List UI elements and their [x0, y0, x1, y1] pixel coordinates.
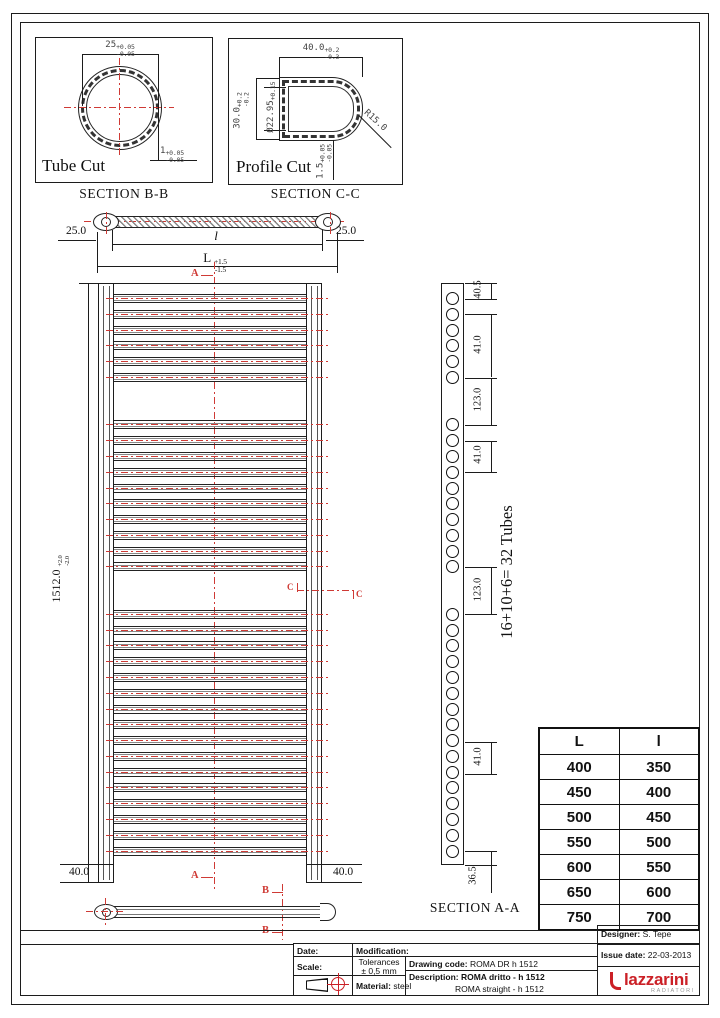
designer-field: Designer: S. Tepe	[601, 929, 671, 939]
line: +1.5-1.5	[214, 258, 227, 273]
line: -0.2	[243, 92, 250, 107]
scale-label: Scale:	[297, 962, 322, 972]
section-b-marker-top: B	[262, 885, 269, 896]
line	[158, 54, 159, 161]
inner-length-dim: l	[209, 228, 223, 244]
line	[114, 659, 306, 664]
front-tube	[114, 547, 306, 556]
line: 1.5	[316, 163, 326, 179]
section-c-line	[297, 590, 354, 591]
brand-subtitle: RADIATORI	[651, 988, 695, 994]
line: -2.0	[65, 556, 72, 567]
brand-name: lazzarini	[624, 970, 688, 990]
dim-line	[491, 283, 492, 299]
line	[114, 486, 306, 491]
line	[114, 675, 306, 680]
front-tube	[114, 294, 306, 303]
side-tube-circle	[446, 450, 459, 463]
size-header-l: l	[619, 728, 699, 755]
side-tube-circle	[446, 813, 459, 826]
front-tube	[114, 484, 306, 493]
size-cell: 650	[539, 880, 619, 905]
line	[256, 139, 280, 140]
front-tube	[114, 815, 306, 824]
front-tube	[114, 799, 306, 808]
side-dimension-label: 123.0	[473, 567, 484, 611]
tube-count-label: 16+10+6= 32 Tubes	[497, 487, 517, 657]
line	[20, 944, 293, 945]
line	[58, 240, 96, 241]
bottom-left-dim: 40.0	[62, 866, 96, 878]
red-centerline	[272, 892, 283, 893]
line	[306, 864, 362, 865]
section-c-marker-right: C	[356, 589, 363, 599]
line	[279, 57, 280, 77]
line	[114, 423, 306, 428]
front-tube	[114, 689, 306, 698]
side-tube-circle	[446, 766, 459, 779]
line	[114, 722, 306, 727]
line	[326, 240, 364, 241]
line	[362, 57, 363, 77]
line: +2.0-2.0	[58, 556, 71, 567]
side-tube-circle	[446, 545, 459, 558]
line: ROMA dritto - h 1512	[461, 972, 545, 982]
side-tube-circle	[446, 687, 459, 700]
front-tube	[114, 831, 306, 840]
dim-extension-line	[465, 314, 497, 315]
profile-bore-dim: Ø22.95+0.15	[266, 77, 277, 137]
size-cell: 600	[539, 855, 619, 880]
size-cell: 450	[539, 780, 619, 805]
line	[114, 312, 306, 317]
profile-inner	[288, 86, 354, 132]
tube-centerline-v	[119, 58, 120, 158]
front-tube	[114, 341, 306, 350]
side-tube-circle	[446, 324, 459, 337]
description-field: Description: ROMA dritto - h 1512	[409, 972, 545, 982]
front-tube	[114, 468, 306, 477]
side-tube-circle	[446, 624, 459, 637]
red-centerline	[105, 898, 106, 926]
section-cc-label: SECTION C-C	[228, 186, 403, 202]
line: 30.0	[233, 107, 243, 129]
front-tube	[114, 705, 306, 714]
line	[60, 882, 98, 883]
profile-wall-dim: 1.5+0.05-0.05	[316, 132, 333, 192]
side-tube-circle	[446, 292, 459, 305]
side-tube-circle	[446, 529, 459, 542]
line	[311, 286, 312, 880]
top-view-tube	[113, 216, 320, 228]
dim-line	[491, 441, 492, 473]
side-tube-circle	[446, 608, 459, 621]
front-tube	[114, 326, 306, 335]
right-collector	[306, 283, 322, 883]
height-dim: 1512.0 +2.0-2.0	[49, 539, 71, 619]
section-a-marker-top: A	[191, 268, 199, 279]
dim-line	[491, 851, 492, 893]
side-tube-circle	[446, 371, 459, 384]
line: Date:	[297, 946, 318, 956]
front-tube	[114, 768, 306, 777]
brand-logo: lazzarini	[610, 970, 688, 990]
line: 25	[105, 40, 116, 50]
line	[114, 786, 306, 791]
size-header-L: L	[539, 728, 619, 755]
line: +0.05-0.05	[165, 150, 184, 163]
line: +0.2-0.2	[237, 92, 250, 107]
line: Ø22.95	[266, 100, 276, 133]
size-table-header: L l	[539, 728, 699, 755]
line: Description:	[409, 972, 459, 982]
size-table-row: 500450	[539, 805, 699, 830]
dim-line	[491, 378, 492, 425]
profile-width-dim: 40.0+0.2-0.3	[287, 43, 355, 60]
front-tube	[114, 752, 306, 761]
height-dim-line	[88, 283, 89, 883]
line: Scale:	[297, 962, 322, 972]
size-cell: 400	[539, 755, 619, 780]
side-tube-circle	[446, 829, 459, 842]
section-a-marker-bottom: A	[191, 870, 199, 881]
line: 1512.0	[49, 570, 63, 603]
line	[114, 359, 306, 364]
tube-cut-title: Tube Cut	[42, 156, 105, 176]
side-dimension-label: 41.0	[473, 734, 484, 778]
tube-diameter-dim: 25+0.05-0.05	[92, 40, 148, 57]
tolerances-value: ± 0,5 mm	[354, 966, 404, 976]
front-tube	[114, 499, 306, 508]
line	[114, 738, 306, 743]
line: +0.05-0.05	[320, 144, 333, 163]
size-cell: 600	[619, 880, 699, 905]
side-dimension-label: 41.0	[473, 433, 484, 477]
front-tube	[114, 515, 306, 524]
line	[405, 970, 597, 971]
line: +0.15	[270, 82, 277, 101]
line: Modification:	[356, 946, 409, 956]
line	[114, 549, 306, 554]
side-tube-circle	[446, 308, 459, 321]
line: Issue date:	[601, 950, 645, 960]
front-tube	[114, 420, 306, 429]
size-cell: 450	[619, 805, 699, 830]
dim-extension-line	[465, 425, 497, 426]
section-bb-label: SECTION B-B	[35, 186, 213, 202]
size-table-row: 550500	[539, 830, 699, 855]
front-tube	[114, 357, 306, 366]
line: ROMA DR h 1512	[470, 959, 538, 969]
side-dimension-label: 123.0	[473, 378, 484, 422]
dim-line	[491, 314, 492, 377]
line	[114, 628, 306, 633]
front-tube	[114, 657, 306, 666]
line: 40.0	[303, 43, 325, 53]
side-tube-circle	[446, 845, 459, 858]
bottom-right-dim: 40.0	[326, 866, 360, 878]
front-tube	[114, 531, 306, 540]
issue-date-field: Issue date: 22-03-2013	[601, 950, 691, 960]
line	[114, 770, 306, 775]
side-tube-circle	[446, 466, 459, 479]
line	[114, 817, 306, 822]
size-table-row: 450400	[539, 780, 699, 805]
line	[114, 691, 306, 696]
dim-extension-line	[465, 614, 497, 615]
red-centerline	[201, 275, 213, 276]
line: +0.15	[270, 82, 277, 101]
front-tube	[114, 720, 306, 729]
front-tube	[114, 436, 306, 445]
date-label: Date:	[297, 946, 318, 956]
profile-height-dim: 30.0+0.2-0.2	[233, 81, 250, 141]
front-tube	[114, 373, 306, 382]
line	[114, 754, 306, 759]
front-tube	[114, 641, 306, 650]
drawing-code-field: Drawing code: ROMA DR h 1512	[409, 959, 538, 969]
material-field: Material: steel	[356, 981, 411, 991]
front-tube	[114, 626, 306, 635]
line: steel	[393, 981, 411, 991]
line	[333, 140, 334, 180]
line	[317, 286, 318, 880]
line	[112, 230, 113, 251]
drawing-sheet: 25+0.05-0.05 1+0.05-0.05 Tube Cut SECTIO…	[0, 0, 720, 1018]
line	[79, 283, 98, 284]
dim-extension-line	[465, 851, 497, 852]
red-centerline	[338, 973, 339, 995]
right-offset-dim: 25.0	[328, 225, 364, 237]
line	[20, 930, 597, 931]
size-cell: 500	[619, 830, 699, 855]
side-tube-circle	[446, 734, 459, 747]
red-centerline	[106, 212, 107, 234]
line	[112, 909, 324, 915]
side-tube-circle	[446, 671, 459, 684]
line: S. Tepe	[643, 929, 672, 939]
line: -0.05	[116, 51, 135, 58]
red-centerline	[353, 590, 354, 599]
line: Designer:	[601, 929, 640, 939]
line: L l	[539, 728, 699, 755]
line	[114, 438, 306, 443]
bottom-view-fitting-bore	[102, 908, 111, 917]
line: -0.05	[165, 157, 184, 164]
front-tube	[114, 847, 306, 856]
line	[114, 470, 306, 475]
line: -0.05	[326, 144, 333, 163]
left-collector	[98, 283, 114, 883]
section-aa-label: SECTION A-A	[420, 900, 530, 916]
line	[114, 833, 306, 838]
line	[82, 54, 83, 106]
line	[322, 230, 323, 251]
line: L	[203, 250, 210, 265]
line	[114, 283, 306, 284]
size-table-row: 600550	[539, 855, 699, 880]
dim-line	[491, 742, 492, 774]
side-tube-circle	[446, 513, 459, 526]
line	[114, 501, 306, 506]
line	[97, 232, 98, 273]
line	[322, 882, 362, 883]
side-dimension-label: 40.5	[473, 267, 484, 311]
front-tube	[114, 783, 306, 792]
front-tube	[114, 310, 306, 319]
line	[109, 286, 110, 880]
size-table-row: 650600	[539, 880, 699, 905]
size-cell: 350	[619, 755, 699, 780]
side-dimension-label: 36.5	[468, 854, 479, 898]
size-table: L l 400350450400500450550500600550650600…	[538, 727, 700, 931]
line	[114, 612, 306, 617]
line: -1.5	[214, 266, 227, 274]
line	[352, 943, 353, 996]
modification-label: Modification:	[356, 946, 409, 956]
brand-mark-icon	[610, 972, 621, 990]
line: Drawing code:	[409, 959, 468, 969]
front-tube	[114, 673, 306, 682]
line	[114, 328, 306, 333]
line	[114, 454, 306, 459]
line	[114, 644, 306, 649]
left-offset-dim: 25.0	[58, 225, 94, 237]
line	[114, 533, 306, 538]
line	[103, 286, 104, 880]
line	[337, 232, 338, 273]
size-cell: 500	[539, 805, 619, 830]
line	[114, 801, 306, 806]
red-centerline	[272, 932, 283, 933]
line: 22-03-2013	[648, 950, 691, 960]
line	[114, 296, 306, 301]
side-tube-circle	[446, 750, 459, 763]
line	[114, 565, 306, 570]
size-table-body: 4003504504005004505505006005506506007507…	[539, 755, 699, 931]
line	[60, 864, 114, 865]
line: +0.2-0.3	[324, 47, 339, 60]
front-tube	[114, 452, 306, 461]
front-tube	[114, 610, 306, 619]
line: -0.3	[324, 54, 339, 61]
front-tube	[114, 562, 306, 571]
line	[114, 344, 306, 349]
dim-line	[491, 567, 492, 614]
line	[112, 244, 322, 245]
red-centerline	[201, 877, 213, 878]
size-cell: 400	[619, 780, 699, 805]
size-cell: 550	[619, 855, 699, 880]
size-cell: 550	[539, 830, 619, 855]
size-table-row: 400350	[539, 755, 699, 780]
profile-cut-title: Profile Cut	[236, 157, 311, 177]
line	[293, 956, 597, 957]
line	[114, 375, 306, 380]
side-tube-circle	[446, 703, 459, 716]
side-dimension-label: 41.0	[473, 322, 484, 366]
line: Material:	[356, 981, 391, 991]
side-tube-circle	[446, 482, 459, 495]
line	[114, 707, 306, 712]
section-c-marker-left: C	[287, 582, 294, 592]
front-tube	[114, 736, 306, 745]
tube-wall-dim: 1+0.05-0.05	[160, 146, 184, 163]
line	[114, 517, 306, 522]
line	[256, 78, 257, 140]
line: +0.05-0.05	[116, 44, 135, 57]
line	[114, 849, 306, 854]
side-tube-circle	[446, 655, 459, 668]
tube-inner-circle	[86, 74, 154, 142]
description-alt: ROMA straight - h 1512	[455, 984, 544, 994]
